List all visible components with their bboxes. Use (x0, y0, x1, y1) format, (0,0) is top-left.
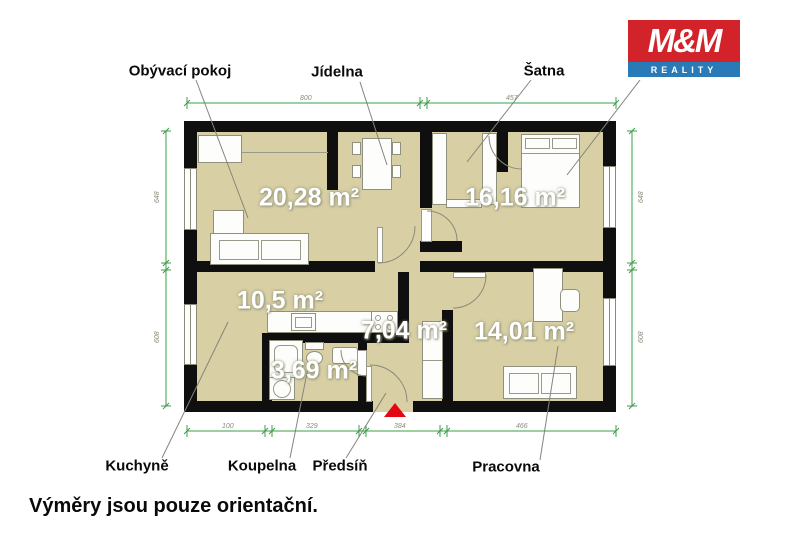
wall-segment (184, 230, 197, 304)
sofa (503, 366, 577, 399)
pillow (525, 138, 550, 149)
entrance-arrow-icon (384, 403, 406, 417)
dimension-label: 100 (222, 423, 234, 430)
dimension-label: 457 (506, 95, 519, 102)
sink-basin (295, 317, 312, 328)
dining-table (362, 138, 392, 190)
wall-segment (413, 401, 616, 412)
room-label-bathroom: Koupelna (228, 458, 296, 475)
wall-segment (184, 121, 616, 132)
dimension-label: 648 (638, 191, 645, 203)
desk (533, 268, 563, 322)
disclaimer-text: Výměry jsou pouze orientační. (29, 495, 318, 518)
door-leaf (453, 272, 486, 278)
closet-divider-line (423, 360, 442, 361)
area-label-kitchen: 10,5 m² (237, 287, 323, 316)
room-label-study: Pracovna (472, 459, 540, 476)
sofa-cushion (541, 373, 571, 394)
sideboard (198, 135, 242, 163)
office-chair (560, 289, 580, 312)
area-label-living: 20,28 m² (259, 184, 359, 213)
agency-logo: M&M REALITY (628, 20, 740, 77)
dimension-label: 608 (154, 331, 161, 343)
wall-segment (603, 121, 616, 166)
logo-subtext: REALITY (651, 65, 718, 75)
window (184, 168, 197, 230)
door-leaf (357, 350, 367, 376)
wall-segment (497, 132, 508, 172)
toilet-tank (305, 342, 324, 350)
chair (352, 165, 361, 178)
floor-plan-page: 800 457 100 329 384 466 648 608 648 608 … (0, 0, 800, 533)
wardrobe (432, 133, 447, 205)
sofa-cushion (509, 373, 539, 394)
sofa (210, 233, 309, 265)
dimension-label: 384 (394, 423, 406, 430)
door-leaf (377, 227, 383, 263)
wall-segment (420, 241, 462, 252)
wall-segment (420, 132, 432, 208)
room-label-hall: Předsíň (312, 458, 367, 475)
wall-segment (184, 121, 197, 168)
dimension-label: 800 (300, 95, 312, 102)
sink (291, 313, 316, 331)
chair (392, 165, 401, 178)
wall-segment (420, 261, 603, 272)
dimension-label: 648 (154, 191, 161, 203)
room-label-living: Obývací pokoj (129, 63, 232, 80)
logo-bottom-band: REALITY (628, 62, 740, 77)
dimension-label: 466 (516, 423, 528, 430)
window (603, 166, 616, 228)
wall-segment (603, 228, 616, 298)
wall-segment (327, 132, 338, 190)
wall-segment (603, 366, 616, 412)
wall-segment (184, 401, 373, 412)
chair (392, 142, 401, 155)
armchair (213, 210, 244, 234)
pillow (552, 138, 577, 149)
door-leaf (421, 209, 432, 242)
cabinet-front-line (242, 152, 328, 153)
sofa-cushion (261, 240, 301, 260)
area-label-hall: 7,04 m² (361, 317, 447, 346)
logo-top-band: M&M (628, 20, 740, 62)
area-label-bedroom: 16,16 m² (465, 184, 565, 213)
dimension-label: 329 (306, 423, 318, 430)
dimension-label: 608 (638, 331, 645, 343)
window (603, 298, 616, 366)
window (184, 304, 197, 365)
logo-text: M&M (648, 22, 721, 60)
room-label-closet: Šatna (524, 63, 565, 80)
wall-segment (184, 365, 197, 412)
room-label-dining: Jídelna (311, 64, 363, 81)
chair (352, 142, 361, 155)
area-label-bathroom: 3,69 m² (271, 357, 357, 386)
room-label-kitchen: Kuchyně (105, 458, 168, 475)
sofa-cushion (219, 240, 259, 260)
blanket-line (522, 153, 579, 154)
area-label-study: 14,01 m² (474, 318, 574, 347)
